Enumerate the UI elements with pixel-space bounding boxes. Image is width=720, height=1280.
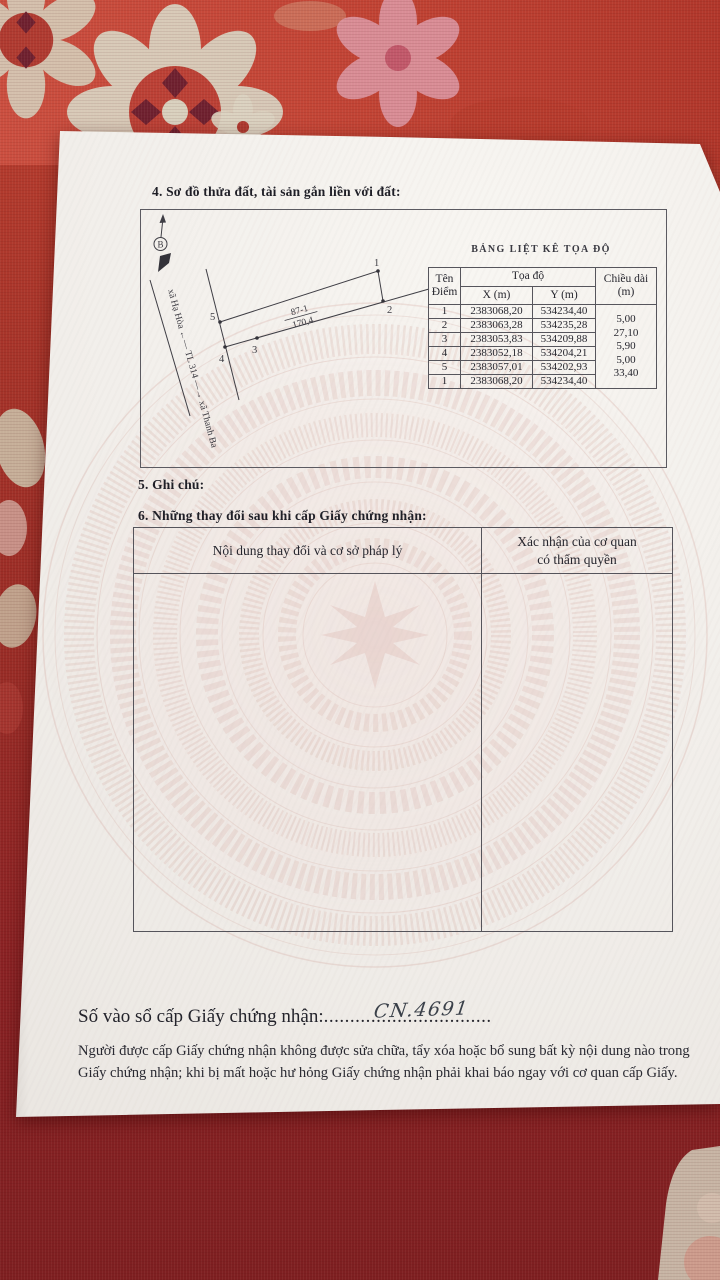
table-row: 1 2383068,20 534234,40 5,00 27,10 5,90 5… [429,305,657,319]
changes-col1-header: Nội dung thay đổi và cơ sở pháp lý [134,528,482,573]
point-2-label: 2 [387,305,392,316]
changes-table: Nội dung thay đổi và cơ sở pháp lý Xác n… [133,527,673,932]
registry-label: Số vào sổ cấp Giấy chứng nhận: [78,1006,324,1027]
length-column: 5,00 27,10 5,90 5,00 33,40 [596,305,657,389]
changes-col2-header: Xác nhận của cơ quan có thẩm quyền [482,528,672,573]
certificate-paper-wrap: 4. Sơ đồ thửa đất, tài sản gắn liền với … [0,0,720,1280]
road-line-near [206,269,239,400]
registry-number-handwritten: CN.4691 [372,997,470,1022]
north-arrow-icon: B [154,214,171,272]
coordinate-table: Tên Điểm Tọa độ Chiều dài (m) X (m) Y (m… [428,267,657,389]
changes-col1-cell [134,574,482,931]
certificate-paper: 4. Sơ đồ thửa đất, tài sản gắn liền với … [0,0,720,1280]
coordinate-table-title: BẢNG LIỆT KÊ TỌA ĐỘ [428,244,654,255]
point-4-label: 4 [219,354,225,365]
col-header-y: Y (m) [533,287,596,305]
changes-table-body [134,574,672,931]
footer-note: Người được cấp Giấy chứng nhận không đượ… [78,1041,690,1084]
point-5-label: 5 [210,312,215,323]
changes-table-header: Nội dung thay đổi và cơ sở pháp lý Xác n… [134,528,672,574]
registry-line: Số vào sổ cấp Giấy chứng nhận:..........… [78,1006,492,1028]
section5-title: 5. Ghi chú: [138,477,204,493]
section6-title: 6. Những thay đổi sau khi cấp Giấy chứng… [138,508,427,524]
footer-line1: Người được cấp Giấy chứng nhận không đượ… [78,1041,690,1063]
footer-line2: Giấy chứng nhận; khi bị mất hoặc hư hỏng… [78,1063,690,1085]
col-header-x: X (m) [461,287,533,305]
point-3-label: 3 [252,345,257,356]
parcel-label: 87-1 170,4 [282,302,321,333]
photo-of-land-certificate: 4. Sơ đồ thửa đất, tài sản gắn liền với … [0,0,720,1280]
north-label: B [157,240,163,250]
col-header-coords: Tọa độ [461,268,596,287]
flag-icon [158,253,171,272]
point-1-label: 1 [374,258,379,269]
changes-col2-cell [482,574,672,931]
section4-title: 4. Sơ đồ thửa đất, tài sản gắn liền với … [152,184,401,200]
col-header-point: Tên Điểm [429,268,461,305]
col-header-length: Chiều dài (m) [596,268,657,305]
